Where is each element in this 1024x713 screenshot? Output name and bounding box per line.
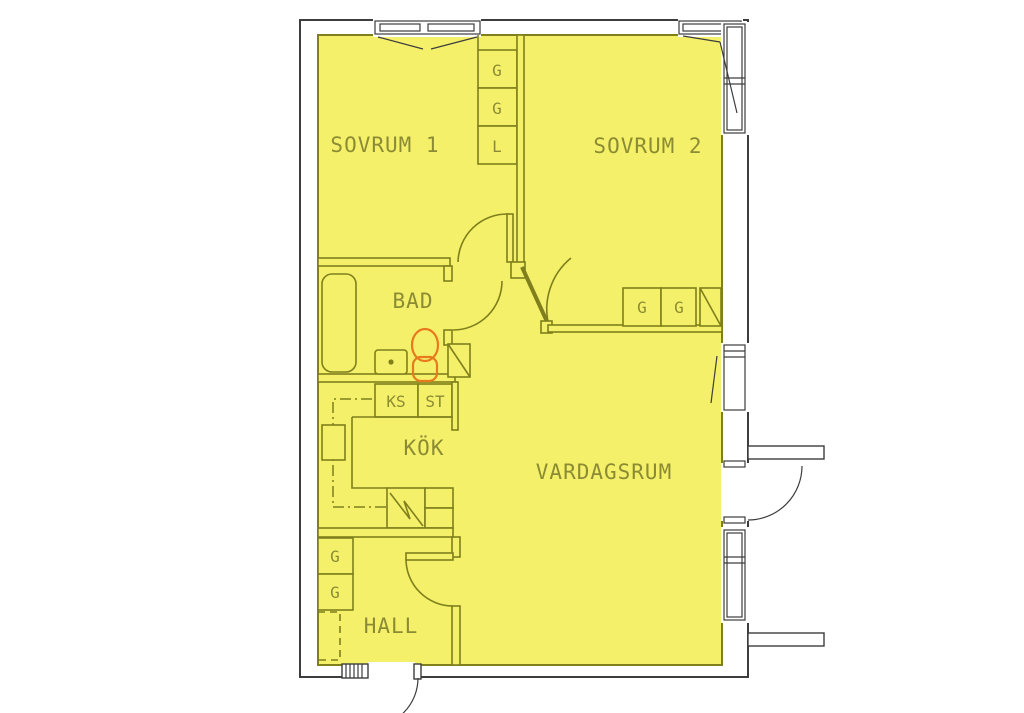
label-bad: BAD xyxy=(393,289,434,313)
label-sovrum1: SOVRUM 1 xyxy=(330,133,439,157)
floor-plan: SOVRUM 1 SOVRUM 2 BAD KÖK VARDAGSRUM HAL… xyxy=(0,0,1024,713)
wall-kitchen-south xyxy=(318,528,453,537)
shaft-bathroom xyxy=(448,344,470,377)
floor-plan-drawing: SOVRUM 1 SOVRUM 2 BAD KÖK VARDAGSRUM HAL… xyxy=(0,0,1024,713)
window-vardagsrum-lower xyxy=(721,527,749,623)
label-st: ST xyxy=(425,392,445,411)
label-hall-g2: G xyxy=(330,583,340,602)
label-hall-g1: G xyxy=(330,547,340,566)
label-vardagsrum: VARDAGSRUM xyxy=(536,460,672,484)
sink xyxy=(375,350,407,374)
entrance-door xyxy=(342,662,421,713)
label-kok: KÖK xyxy=(404,435,445,460)
balcony-railing xyxy=(748,446,824,646)
bathtub xyxy=(322,274,356,372)
label-wardrobe-g2: G xyxy=(492,99,502,118)
label-sovrum2-g1: G xyxy=(637,298,647,317)
label-wardrobe-g1: G xyxy=(492,61,502,80)
label-hall: HALL xyxy=(364,614,419,638)
label-ks: KS xyxy=(386,392,405,411)
label-sovrum2-g2: G xyxy=(674,298,684,317)
label-sovrum2: SOVRUM 2 xyxy=(593,134,702,158)
balcony-door xyxy=(721,461,802,523)
label-wardrobe-l: L xyxy=(492,137,502,156)
wall-sovrum2-west xyxy=(517,35,524,267)
